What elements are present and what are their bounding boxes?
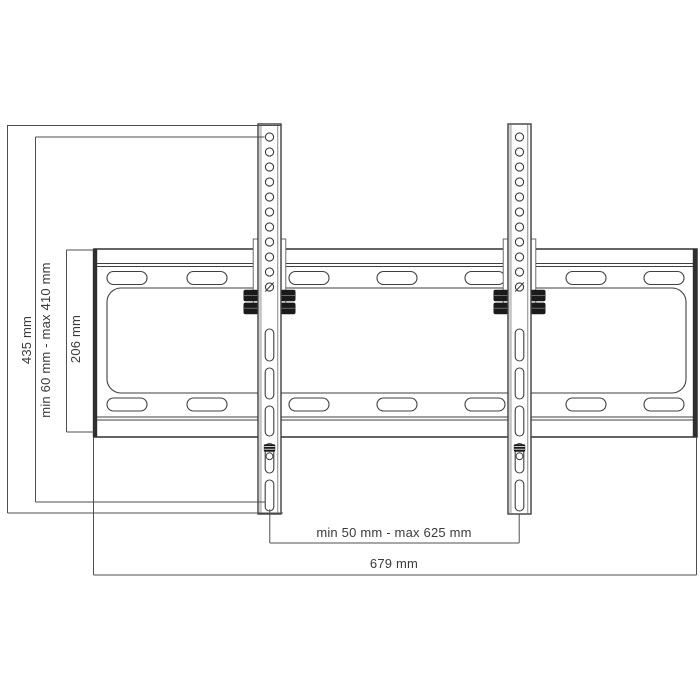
wall-plate-right-edge — [693, 249, 697, 437]
rail-height-label: 435 mm — [20, 280, 34, 400]
wall-plate — [93, 249, 697, 437]
plate-width-label: 679 mm — [294, 557, 494, 571]
plate-height-label: 206 mm — [69, 279, 83, 399]
dimension-drawing: 435 mm min 60 mm - max 410 mm 206 mm min… — [0, 0, 700, 700]
rail-spacing-range-label: min 50 mm - max 625 mm — [284, 526, 504, 540]
dimension-plate-width-lines — [94, 437, 697, 575]
wall-plate-slots-lower-row — [107, 398, 684, 411]
wall-plate-left-edge — [93, 249, 97, 437]
wall-plate-slots-upper-row — [107, 272, 684, 285]
vertical-adjust-range-label: min 60 mm - max 410 mm — [39, 250, 53, 430]
bracket-line-art — [0, 0, 700, 700]
